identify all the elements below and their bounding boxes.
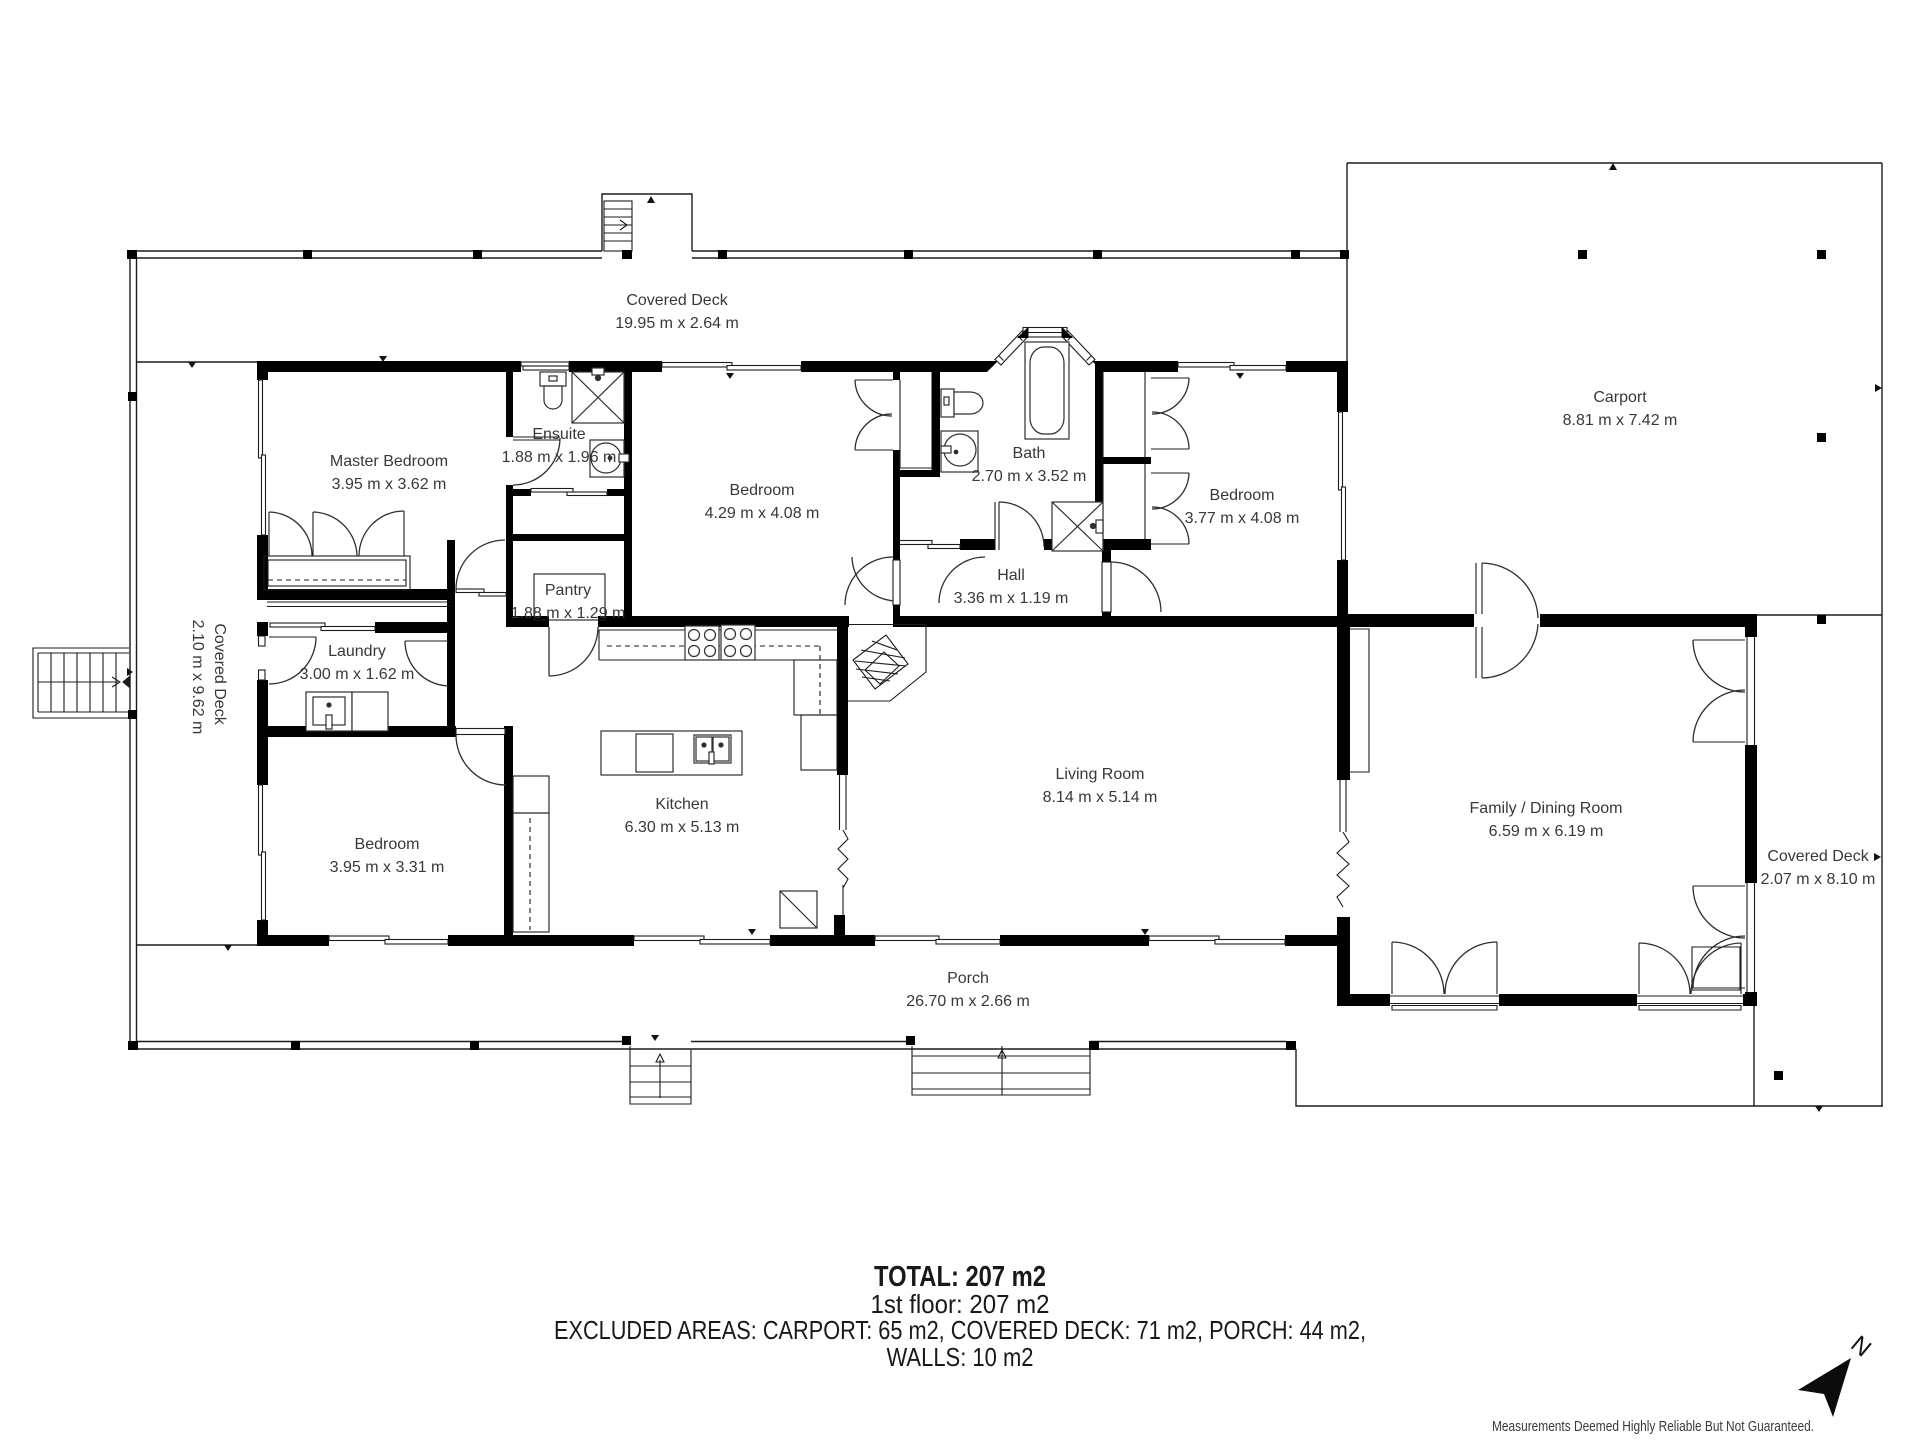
svg-text:1.88 m x 1.29 m: 1.88 m x 1.29 m: [511, 605, 626, 622]
svg-text:6.30 m x 5.13 m: 6.30 m x 5.13 m: [625, 819, 740, 836]
svg-text:Bedroom: Bedroom: [1210, 487, 1275, 504]
svg-text:Porch: Porch: [947, 970, 989, 987]
svg-text:EXCLUDED AREAS: CARPORT: 65 m2: EXCLUDED AREAS: CARPORT: 65 m2, COVERED …: [554, 1315, 1366, 1345]
svg-text:8.81 m x 7.42 m: 8.81 m x 7.42 m: [1563, 412, 1678, 429]
svg-text:3.95 m x 3.31 m: 3.95 m x 3.31 m: [330, 859, 445, 876]
svg-text:3.77 m x 4.08 m: 3.77 m x 4.08 m: [1185, 510, 1300, 527]
svg-text:8.14 m x 5.14 m: 8.14 m x 5.14 m: [1043, 789, 1158, 806]
svg-text:Measurements Deemed Highly Rel: Measurements Deemed Highly Reliable But …: [1492, 1419, 1814, 1435]
svg-text:Master Bedroom: Master Bedroom: [330, 453, 448, 470]
svg-text:3.95 m x 3.62 m: 3.95 m x 3.62 m: [332, 476, 447, 493]
svg-text:3.36 m x 1.19 m: 3.36 m x 1.19 m: [954, 590, 1069, 607]
svg-text:19.95 m x 2.64 m: 19.95 m x 2.64 m: [615, 315, 739, 332]
svg-text:WALLS: 10 m2: WALLS: 10 m2: [887, 1342, 1034, 1372]
svg-text:2.07 m x 8.10 m: 2.07 m x 8.10 m: [1761, 871, 1876, 888]
svg-text:Ensuite: Ensuite: [532, 426, 585, 443]
svg-text:Bedroom: Bedroom: [355, 836, 420, 853]
svg-text:26.70 m x 2.66 m: 26.70 m x 2.66 m: [906, 993, 1030, 1010]
svg-text:4.29 m x 4.08 m: 4.29 m x 4.08 m: [705, 505, 820, 522]
svg-text:Bath: Bath: [1013, 445, 1046, 462]
svg-text:Living Room: Living Room: [1056, 766, 1145, 783]
svg-text:Covered Deck: Covered Deck: [211, 623, 228, 725]
svg-text:Kitchen: Kitchen: [655, 796, 708, 813]
svg-text:Hall: Hall: [997, 567, 1025, 584]
svg-text:1.88 m x 1.96 m: 1.88 m x 1.96 m: [502, 449, 617, 466]
svg-text:Covered Deck: Covered Deck: [1767, 848, 1869, 865]
svg-text:Bedroom: Bedroom: [730, 482, 795, 499]
svg-text:2.70 m x 3.52 m: 2.70 m x 3.52 m: [972, 468, 1087, 485]
svg-text:3.00 m x 1.62 m: 3.00 m x 1.62 m: [300, 666, 415, 683]
svg-text:Laundry: Laundry: [328, 643, 386, 660]
svg-text:Family / Dining Room: Family / Dining Room: [1470, 800, 1623, 817]
svg-text:2.10 m x 9.62 m: 2.10 m x 9.62 m: [189, 620, 206, 735]
svg-text:6.59 m x 6.19 m: 6.59 m x 6.19 m: [1489, 823, 1604, 840]
svg-text:Carport: Carport: [1593, 389, 1647, 406]
svg-text:Pantry: Pantry: [545, 582, 591, 599]
svg-text:Covered Deck: Covered Deck: [626, 292, 728, 309]
